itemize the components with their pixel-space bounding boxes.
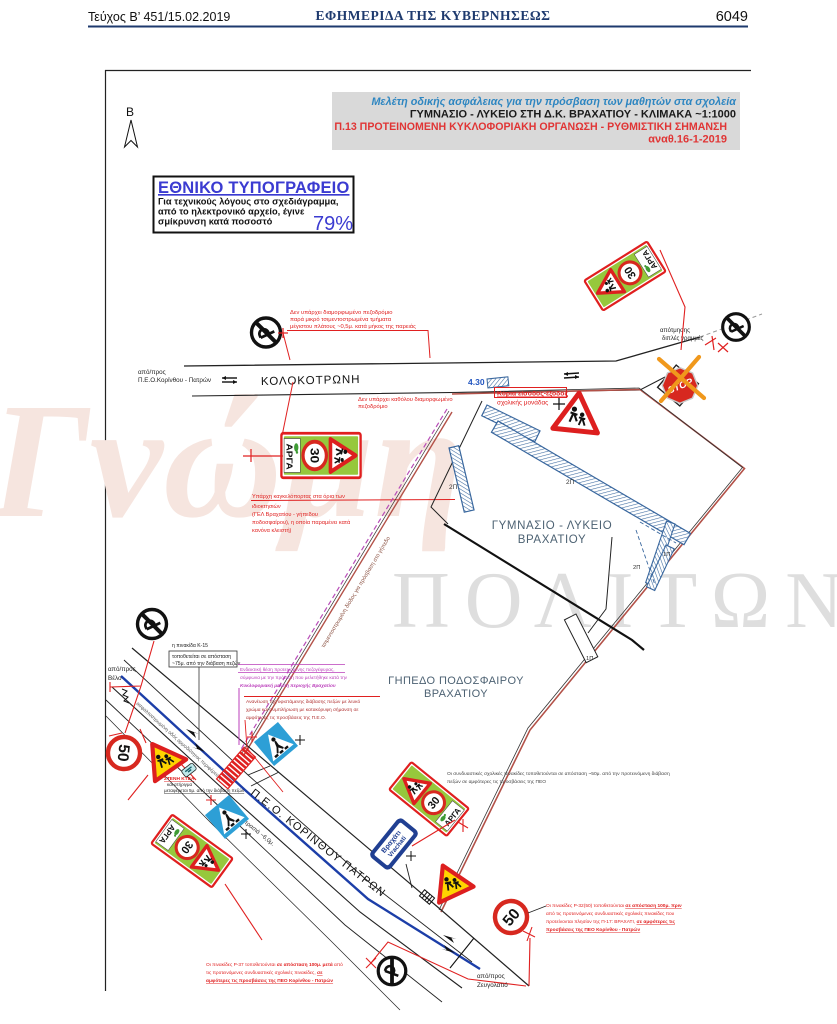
svg-text:79%: 79%	[313, 213, 353, 235]
svg-text:Μελέτη οδικής ασφάλειας για τη: Μελέτη οδικής ασφάλειας για την πρόσβαση…	[371, 96, 737, 108]
svg-text:παρά μικρό τσιμεντοστρωμένα τμ: παρά μικρό τσιμεντοστρωμένα τμήματα	[290, 316, 392, 323]
svg-text:Οι πινακίδες Ρ-37 τοποθετούντα: Οι πινακίδες Ρ-37 τοποθετούνται σε απόστ…	[206, 961, 343, 968]
svg-text:Π.Ε.Ο.Κορίνθου - Πατρών: Π.Ε.Ο.Κορίνθου - Πατρών	[138, 376, 211, 384]
svg-text:Τεύχος Β’ 451/15.02.2019: Τεύχος Β’ 451/15.02.2019	[88, 10, 230, 24]
svg-text:μεταφέρεται 5μ. από την διάβασ: μεταφέρεται 5μ. από την διάβαση πεζών	[164, 787, 245, 793]
svg-text:Κύρια είσοδος-έξοδος: Κύρια είσοδος-έξοδος	[497, 391, 568, 398]
svg-text:1Π: 1Π	[586, 656, 593, 662]
svg-text:από/προς: από/προς	[138, 368, 166, 376]
svg-text:Βέλο: Βέλο	[108, 674, 122, 682]
svg-text:ΓΥΜΝΑΣΙΟ - ΛΥΚΕΙΟ ΣΤΗ Δ.Κ. ΒΡΑ: ΓΥΜΝΑΣΙΟ - ΛΥΚΕΙΟ ΣΤΗ Δ.Κ. ΒΡΑΧΑΤΙΟΥ - Κ…	[410, 109, 736, 121]
svg-text:2Π: 2Π	[449, 484, 458, 491]
svg-text:Υπάρχη καγκελόπορτας στα όρια: Υπάρχη καγκελόπορτας στα όρια των	[252, 493, 345, 500]
svg-text:ΓΥΜΝΑΣΙΟ - ΛΥΚΕΙΟ: ΓΥΜΝΑΣΙΟ - ΛΥΚΕΙΟ	[492, 520, 613, 532]
svg-text:σμίκρυνση κατά ποσοστό: σμίκρυνση κατά ποσοστό	[158, 217, 273, 227]
svg-text:ΕΘΝΙΚΟ ΤΥΠΟΓΡΑΦΕΙΟ: ΕΘΝΙΚΟ ΤΥΠΟΓΡΑΦΕΙΟ	[158, 179, 350, 197]
svg-text:6049: 6049	[716, 9, 748, 25]
svg-text:Ζευγολατιό: Ζευγολατιό	[477, 981, 508, 989]
svg-text:ιδιοκτησιών: ιδιοκτησιών	[252, 504, 281, 510]
svg-text:σχολικής μονάδας: σχολικής μονάδας	[497, 399, 548, 407]
svg-text:αναθ.16-1-2019: αναθ.16-1-2019	[648, 134, 727, 146]
svg-text:Β: Β	[126, 105, 134, 119]
svg-text:από τις προτεινόμενες συνδυαστ: από τις προτεινόμενες συνδυαστικές σχολι…	[546, 910, 675, 917]
svg-text:2Π: 2Π	[633, 565, 640, 571]
svg-text:Κυκλοφοριακή μελέτη περιοχής Β: Κυκλοφοριακή μελέτη περιοχής Βραχατίου	[240, 683, 336, 689]
svg-text:ΒΡΑΧΑΤΙΟΥ: ΒΡΑΧΑΤΙΟΥ	[424, 688, 488, 700]
svg-text:αμφότερες τις προσβάσεις της Π: αμφότερες τις προσβάσεις της ΠΕΟ Κορίνθο…	[206, 978, 333, 984]
svg-text:προσβάσεις της ΠΕΟ Κορίνθου -: προσβάσεις της ΠΕΟ Κορίνθου - Πατρών	[546, 927, 640, 933]
svg-text:ΕΦΗΜΕΡΙΔΑ ΤΗΣ ΚΥΒΕΡΝΗΣΕΩΣ: ΕΦΗΜΕΡΙΔΑ ΤΗΣ ΚΥΒΕΡΝΗΣΕΩΣ	[316, 8, 551, 23]
svg-text:η πινακίδα Κ-15: η πινακίδα Κ-15	[172, 643, 208, 649]
svg-text:τσιμεντοστρωμένη δίοδος για πρ: τσιμεντοστρωμένη δίοδος για πρόσβαση στο…	[320, 535, 392, 649]
svg-text:4.30: 4.30	[468, 377, 485, 387]
svg-text:από το ηλεκτρονικό αρχείο, έγι: από το ηλεκτρονικό αρχείο, έγινε	[158, 207, 305, 217]
svg-text:Για τεχνικούς λόγους στο σχεδι: Για τεχνικούς λόγους στο σχεδιάγραμμα,	[158, 197, 339, 207]
svg-text:χρώμα και συμπλήρωση με κατακό: χρώμα και συμπλήρωση με κατακόρυφη σήμαν…	[246, 706, 359, 713]
svg-text:ΓΗΠΕΔΟ ΠΟΔΟΣΦΑΙΡΟΥ: ΓΗΠΕΔΟ ΠΟΔΟΣΦΑΙΡΟΥ	[388, 675, 524, 687]
svg-text:κανόνα κλειστή): κανόνα κλειστή)	[252, 527, 292, 534]
svg-text:Π.13 ΠΡΟΤΕΙΝΟΜΕΝΗ ΚΥΚΛΟΦΟΡΙΑΚΗ: Π.13 ΠΡΟΤΕΙΝΟΜΕΝΗ ΚΥΚΛΟΦΟΡΙΑΚΗ ΟΡΓΑΝΩΣΗ …	[334, 121, 727, 133]
svg-text:Οι συνδυαστικές σχολικές πινακ: Οι συνδυαστικές σχολικές πινακίδες τοποθ…	[447, 770, 670, 777]
svg-text:ΒΡΑΧΑΤΙΟΥ: ΒΡΑΧΑΤΙΟΥ	[518, 534, 587, 546]
svg-text:πεζοδρόμιο: πεζοδρόμιο	[358, 403, 388, 410]
svg-text:Δεν υπάρχει καθόλου διαμορφωμέ: Δεν υπάρχει καθόλου διαμορφωμένο	[358, 396, 453, 403]
svg-text:σύμφωνα με την πρόταση που μελ: σύμφωνα με την πρόταση που μελετήθηκε κα…	[240, 674, 348, 680]
svg-text:από/προς: από/προς	[477, 972, 505, 980]
svg-text:ΚΟΛΟΚΟΤΡΩΝΗ: ΚΟΛΟΚΟΤΡΩΝΗ	[261, 374, 361, 388]
svg-text:αμφότερες τις προσβάσεις της Π: αμφότερες τις προσβάσεις της Π.Ε.Ο.	[246, 714, 326, 721]
svg-text:1Π: 1Π	[663, 552, 670, 558]
svg-text:πεζών σε αμφότερες τις προσβάσ: πεζών σε αμφότερες τις προσβάσεις της ΠΕ…	[447, 778, 546, 785]
svg-text:ΠΟΛΙΤΩΝ: ΠΟΛΙΤΩΝ	[392, 557, 837, 645]
svg-text:(ΓΕΛ Βραχατίου - γήπεδου: (ΓΕΛ Βραχατίου - γήπεδου	[252, 511, 318, 518]
svg-text:από/προς: από/προς	[108, 665, 136, 673]
svg-text:απότμησης: απότμησης	[660, 327, 690, 334]
svg-text:τις προτεινόμενες συνδυαστικές: τις προτεινόμενες συνδυαστικές σχολικές …	[206, 969, 323, 976]
svg-text:και στήριγμα: και στήριγμα	[167, 781, 193, 787]
svg-text:Οι πινακίδες Ρ-32(50) τοποθετο: Οι πινακίδες Ρ-32(50) τοποθετούνται σε α…	[546, 902, 682, 909]
svg-text:Ανανέωση της υφιστάμενης διάβα: Ανανέωση της υφιστάμενης διάβασης πεζών …	[246, 698, 360, 705]
svg-text:Δεν υπάρχει διαμορφωμένο πεζοδ: Δεν υπάρχει διαμορφωμένο πεζοδρόμιο	[290, 309, 392, 316]
svg-text:Ενδεικτική θέση προτεινόμενης: Ενδεικτική θέση προτεινόμενης πεζογέφυρα…	[240, 666, 335, 673]
svg-text:προτείνονται πλησίον της Π-17:: προτείνονται πλησίον της Π-17: ΒΡΑΧΑΤΙ, …	[546, 919, 675, 925]
svg-text:μέγιστου πλάτους ~0,5μ. κατά μ: μέγιστου πλάτους ~0,5μ. κατά μήκος της π…	[290, 323, 416, 330]
svg-text:τοποθετείται σε απόσταση: τοποθετείται σε απόσταση	[172, 653, 231, 660]
svg-text:ποδοσφαίρου), η οποία παραμένε: ποδοσφαίρου), η οποία παραμένει κατά	[252, 519, 351, 526]
svg-text:2Π: 2Π	[566, 479, 575, 486]
svg-text:~75μ. από την διάβαση πεζών: ~75μ. από την διάβαση πεζών	[172, 660, 241, 667]
